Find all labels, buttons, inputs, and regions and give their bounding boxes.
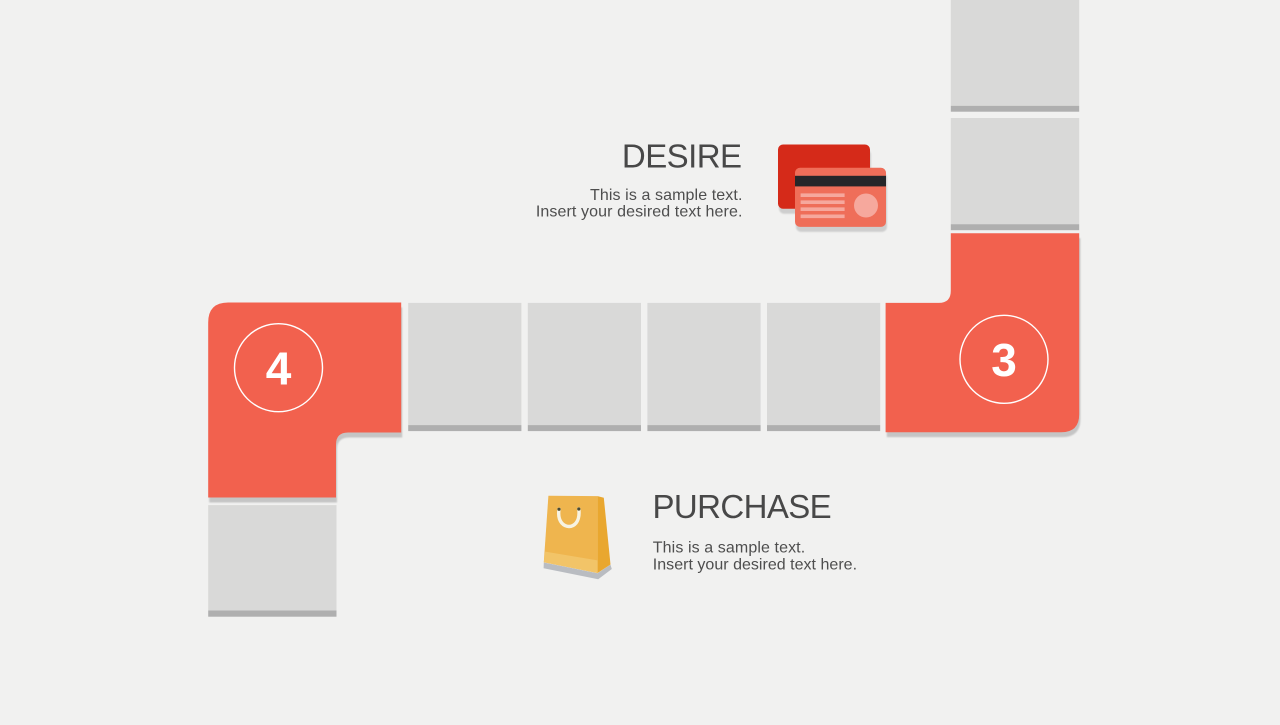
svg-text:Insert your desired text here.: Insert your desired text here. — [536, 204, 743, 221]
svg-text:PURCHASE: PURCHASE — [653, 488, 832, 525]
svg-text:Insert your desired text here.: Insert your desired text here. — [653, 557, 857, 574]
svg-text:This is a sample text.: This is a sample text. — [653, 540, 805, 557]
svg-text:This is a sample text.: This is a sample text. — [590, 187, 742, 204]
svg-text:DESIRE: DESIRE — [622, 137, 742, 174]
svg-text:3: 3 — [991, 334, 1017, 386]
svg-text:4: 4 — [266, 343, 292, 395]
